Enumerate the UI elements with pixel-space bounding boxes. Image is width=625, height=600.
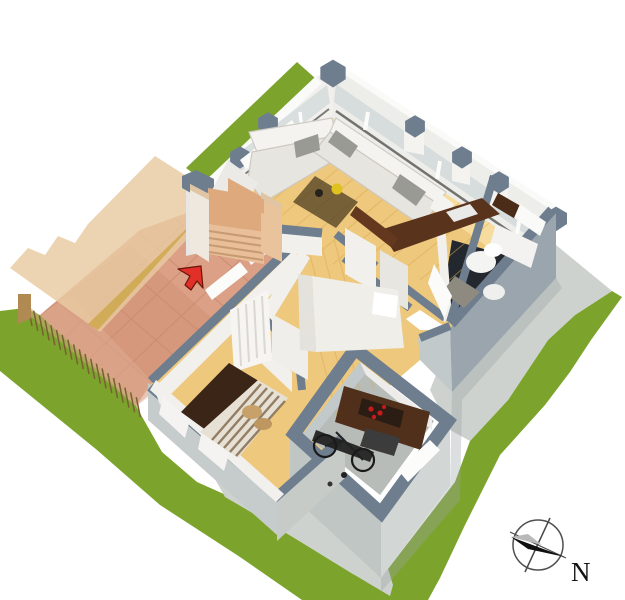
svg-text:N: N bbox=[571, 557, 591, 587]
